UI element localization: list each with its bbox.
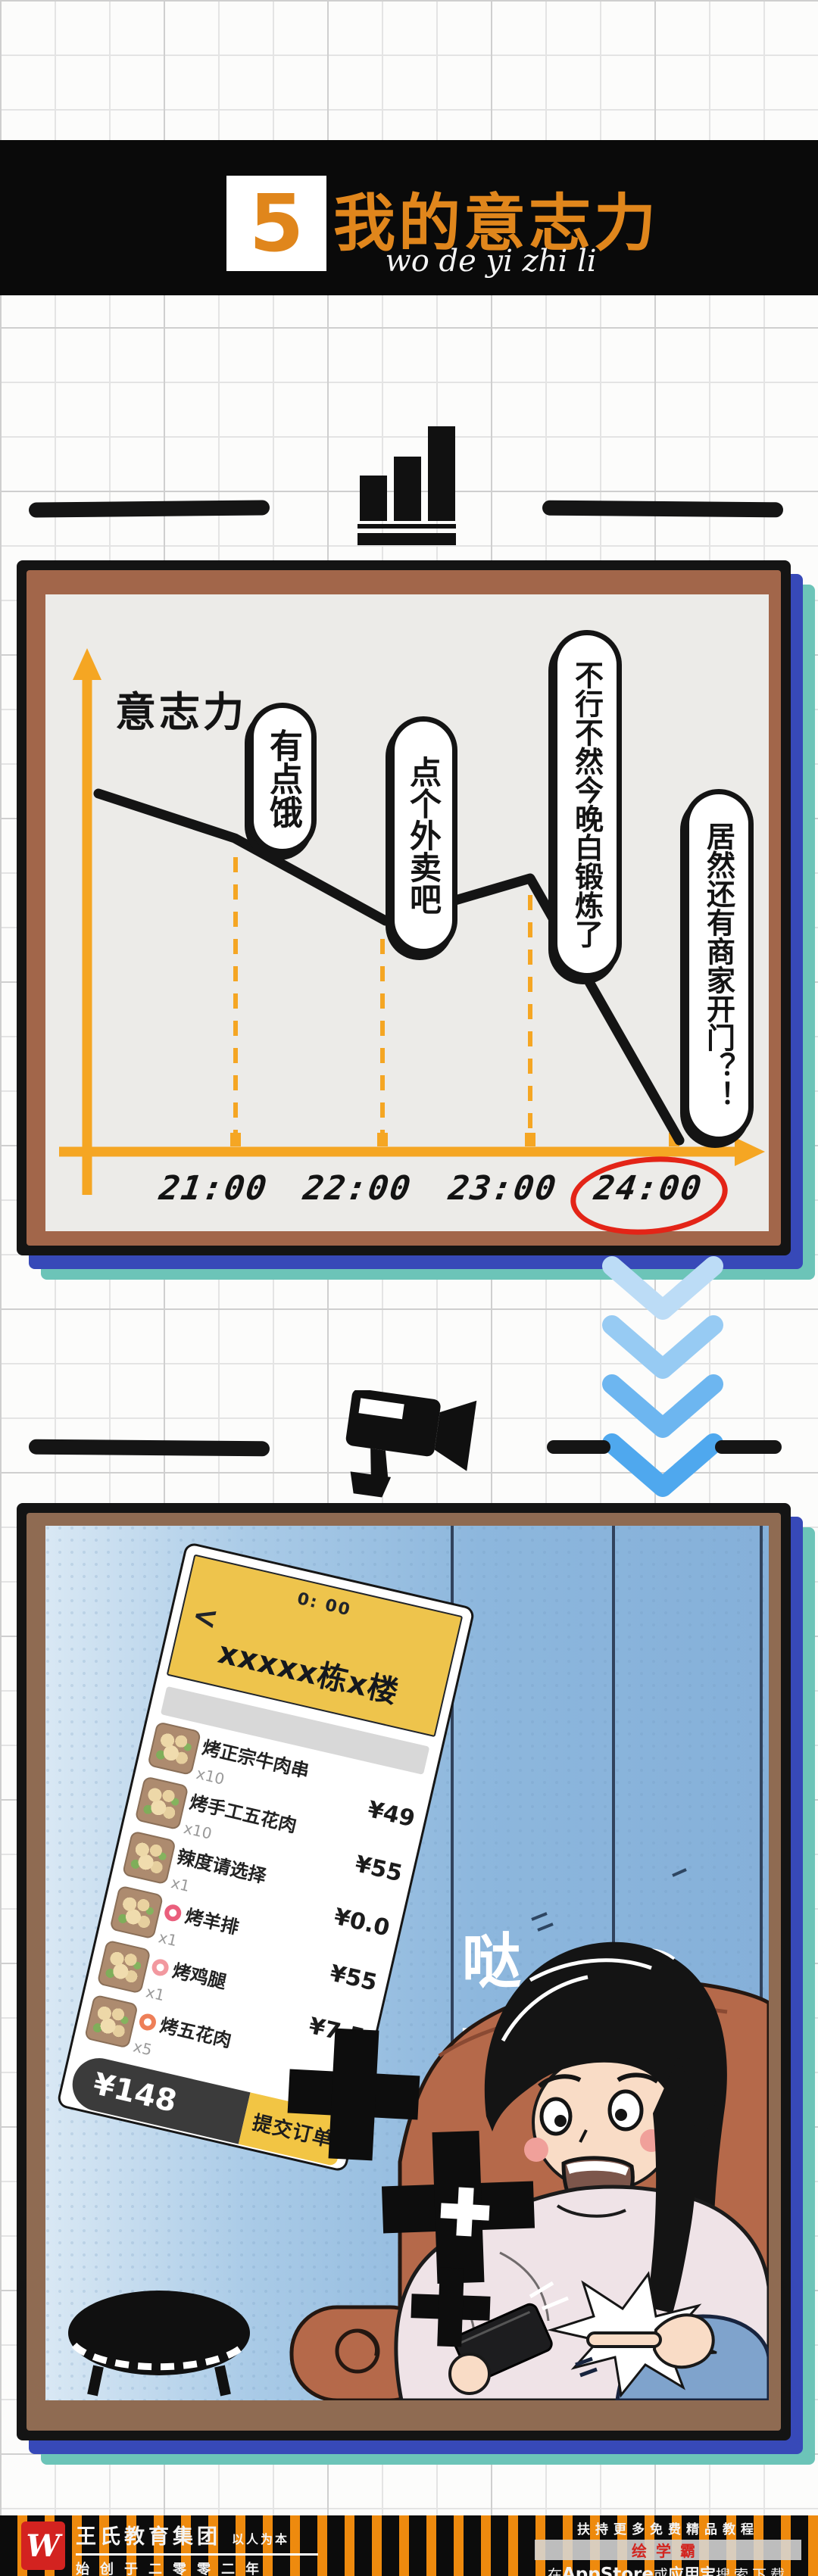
header-band: 5 我的意志力 wo de yi zhi li [0,140,818,295]
divider-line-left-2 [29,1439,270,1457]
sfx-da-1: 哒 [462,1928,521,1996]
brand-slogan: 以人为本 [232,2532,289,2546]
speech-bubble-3: 不行不然今晚白锻炼了 [552,630,622,978]
speech-bubble-4: 居然还有商家开门？！ [684,789,754,1142]
comic-page: 5 我的意志力 wo de yi zhi li 意志力 有点饿 点个外卖吧 不行… [0,0,818,2576]
divider-dash-1 [547,1440,610,1454]
food-thumbnail-icon [135,1776,189,1830]
food-thumbnail-icon [147,1721,201,1776]
food-thumbnail-icon [97,1940,151,1994]
y-axis-arrowhead [73,648,101,680]
divider-line-right [542,501,783,518]
appstore-label: AppStore [562,2565,654,2576]
founded-text: 始创于二零零二年 [76,2559,318,2576]
option-ring-icon [150,1957,170,1977]
chapter-number-box: 5 [226,176,326,271]
option-ring-icon [138,2012,158,2032]
down-chevrons-icon [598,1255,727,1505]
brand-logo: W [21,2521,65,2570]
download-text: 在AppStore或应用宝搜索下载 [535,2562,801,2576]
y-axis-label: 意志力 [115,678,247,738]
tick-21: 21:00 [157,1169,270,1208]
food-thumbnail-icon [109,1885,164,1939]
food-thumbnail-icon [84,1994,139,2049]
footer-right: 扶持更多免费精品教程 绘学霸 在AppStore或应用宝搜索下载 [535,2518,801,2576]
footer-band: W 王氏教育集团以人为本 始创于二零零二年 扶持更多免费精品教程 绘学霸 在Ap… [0,2515,818,2576]
divider-line-left [29,500,270,517]
cctv-camera-icon [342,1390,486,1511]
tick-22: 22:00 [301,1169,414,1208]
option-ring-icon [163,1903,183,1923]
app-name-badge: 绘学霸 [535,2540,801,2560]
divider-dash-2 [715,1440,782,1454]
bar-chart-icon [357,424,457,545]
speech-bubble-1: 有点饿 [248,703,317,854]
promo-text: 扶持更多免费精品教程 [535,2518,801,2537]
food-thumbnail-icon [122,1830,176,1885]
yingyongbao-label: 应用宝 [668,2565,716,2576]
x-axis-arrowhead [735,1137,765,1166]
speech-bubble-2: 点个外卖吧 [389,716,457,954]
page-subtitle: wo de yi zhi li [339,244,642,279]
footer-divider [76,2553,318,2556]
brand-name: 王氏教育集团 [76,2525,221,2549]
footer-left: 王氏教育集团以人为本 始创于二零零二年 [76,2520,318,2576]
page-title: 我的意志力 [333,173,651,241]
tick-23: 23:00 [446,1169,560,1208]
chapter-number: 5 [249,184,304,263]
